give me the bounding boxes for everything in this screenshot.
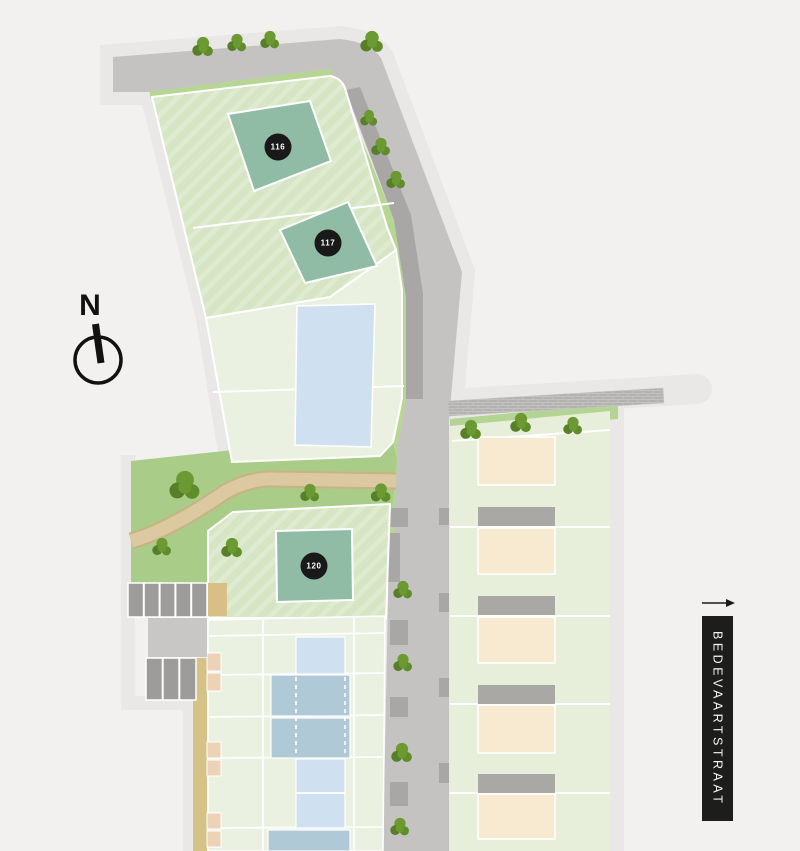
compass-needle — [96, 324, 102, 363]
compass-north-label: N — [79, 289, 101, 322]
plot-marker-116[interactable]: 116 — [265, 134, 292, 161]
parking-strips — [128, 583, 207, 700]
blue-house-middle — [295, 304, 375, 447]
plot-marker-117[interactable]: 117 — [315, 230, 342, 257]
garden-sheds — [207, 653, 221, 847]
street-direction-arrow — [702, 599, 735, 607]
plot-marker-120[interactable]: 120 — [301, 553, 328, 580]
compass: N — [75, 289, 121, 383]
street-name-banner: BEDEVAARTSTRAAT — [702, 616, 733, 821]
site-plan: N 116 117 120 BEDEVAARTSTRAAT — [0, 0, 800, 851]
site-plan-map: N — [0, 0, 800, 851]
